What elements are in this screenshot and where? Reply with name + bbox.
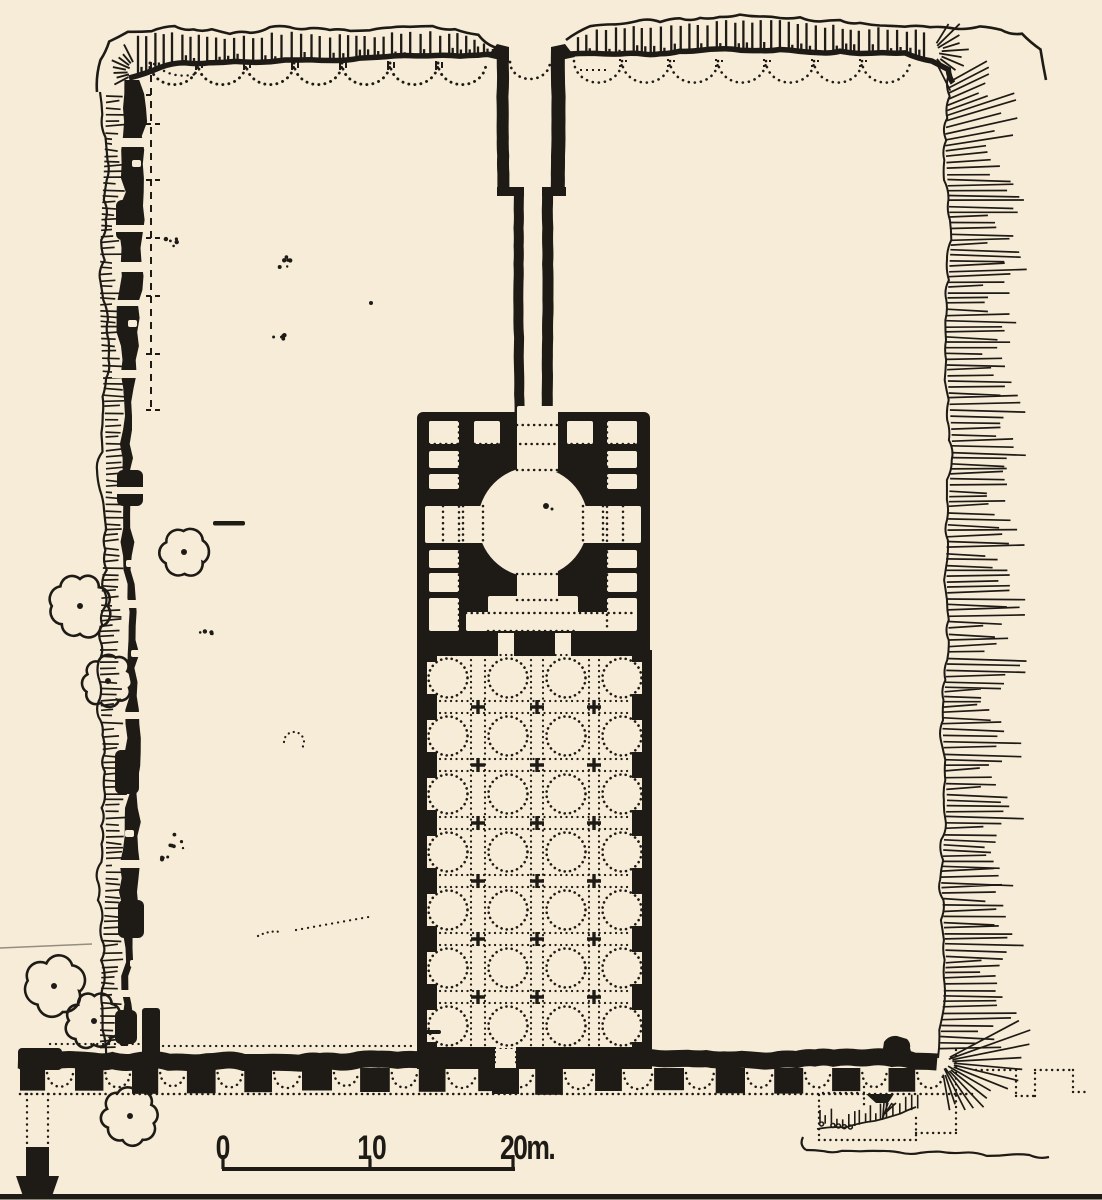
svg-text:10: 10 (357, 1129, 387, 1167)
svg-text:20m.: 20m. (500, 1129, 554, 1167)
svg-text:0: 0 (216, 1129, 231, 1167)
